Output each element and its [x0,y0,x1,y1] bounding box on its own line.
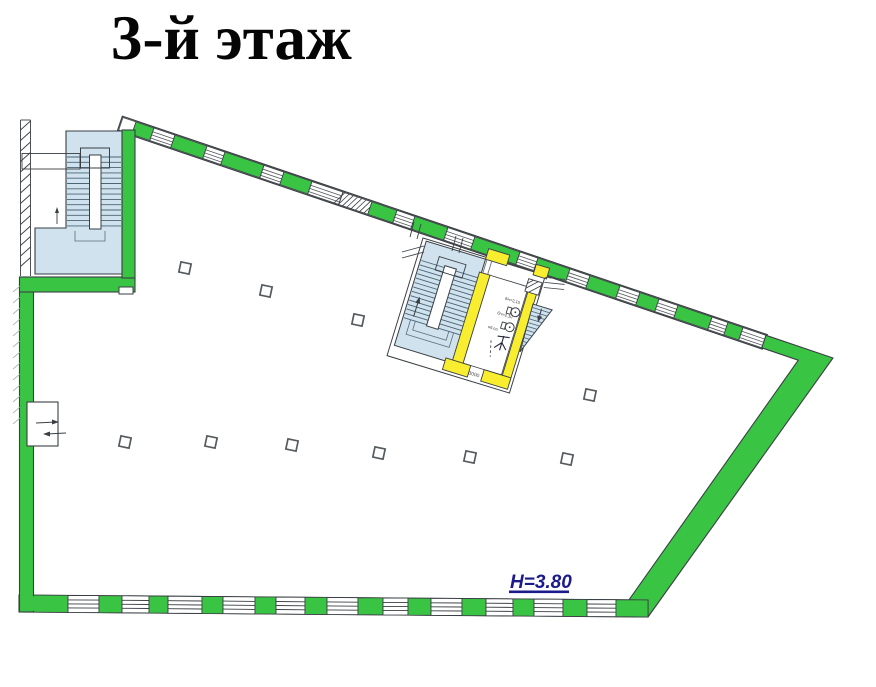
svg-text:3-й этаж: 3-й этаж [111,3,352,73]
svg-text:H=3.80: H=3.80 [510,572,572,593]
